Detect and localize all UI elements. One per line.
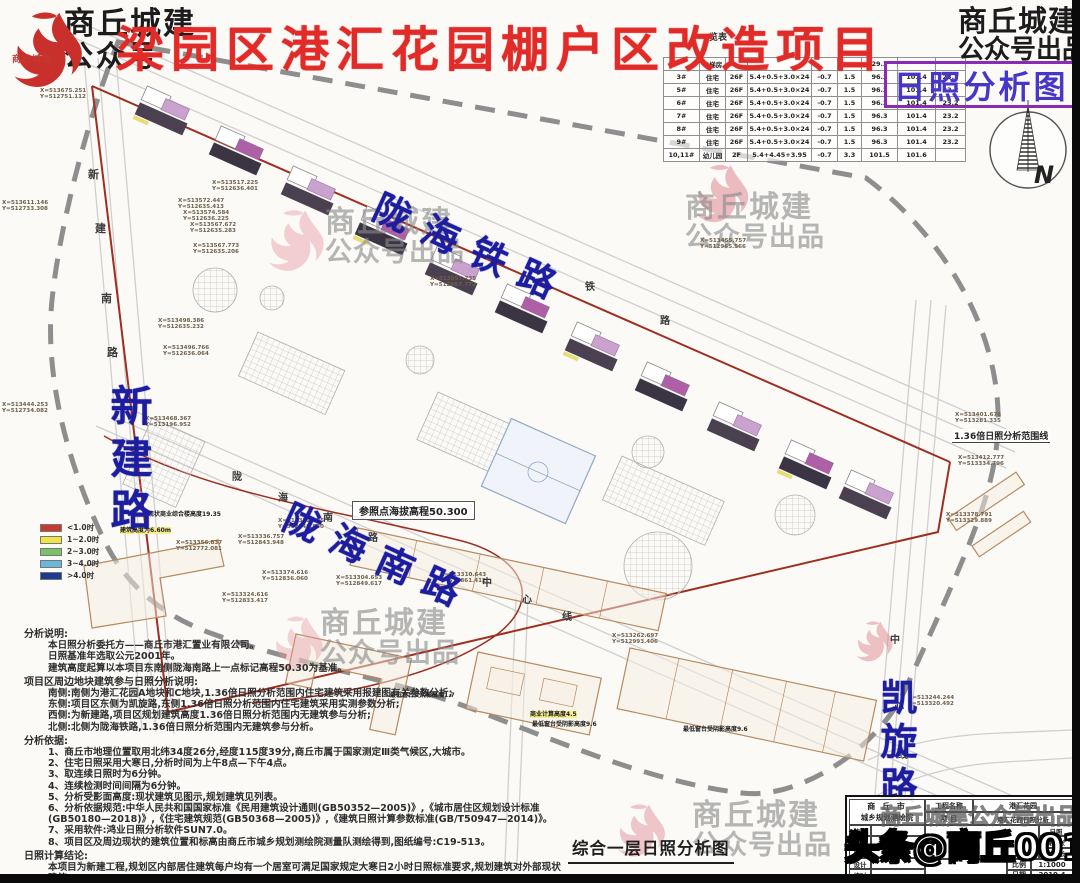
- coord-y: Y=512843.948: [238, 540, 284, 546]
- logo-seal-text: 商丘城建: [12, 52, 52, 65]
- table-cell: 幼儿园: [700, 149, 726, 162]
- legend-swatch: [40, 572, 62, 580]
- coord-y: Y=512635.232: [158, 324, 204, 330]
- legend-label: 1~2.0时: [67, 534, 99, 545]
- sunshine-legend: <1.0时1~2.0时2~3.0时3~4.0时>4.0时: [40, 522, 99, 582]
- table-cell: 101.4: [898, 136, 936, 149]
- toutiao-account-overlay: 头条@商丘001: [845, 820, 1080, 869]
- legend-item: 2~3.0时: [40, 546, 99, 557]
- table-cell: 101.6: [898, 149, 936, 162]
- watermark-line1: 商丘城建: [692, 801, 832, 832]
- table-cell: 住宅: [700, 110, 726, 123]
- table-cell: -0.7: [812, 149, 838, 162]
- road-name-char: 路: [660, 312, 670, 327]
- table-cell: 23.2: [936, 110, 966, 123]
- road-name-char: 陇: [232, 468, 242, 483]
- legend-swatch: [40, 524, 62, 532]
- coordinate-label: X=513374.616Y=512836.060: [262, 570, 308, 582]
- table-cell: 1.5: [838, 110, 862, 123]
- coordinate-label: X=513498.386Y=512635.232: [158, 318, 204, 330]
- coordinate-label: X=513412.777Y=513334.796: [958, 455, 1004, 467]
- table-cell: 5.4+0.5+3.0×24: [748, 123, 812, 136]
- coordinate-label: X=513324.616Y=512833.417: [222, 592, 268, 604]
- road-name-char: 新: [88, 166, 99, 182]
- note-heading: 分析依据:: [24, 736, 569, 747]
- table-cell: 6#: [664, 97, 700, 110]
- table-cell: 2F: [726, 149, 748, 162]
- coordinate-label: X=513356.837Y=512772.081: [176, 540, 222, 552]
- table-cell: 1.5: [838, 123, 862, 136]
- note-line: 西侧:为新建路,项目区规划建筑高度1.36倍日照分析范围内无建筑参与分析;: [48, 710, 569, 721]
- table-cell: 101.4: [898, 110, 936, 123]
- table-cell: 5.4+0.5+3.0×24: [748, 97, 812, 110]
- table-row: 8#住宅26F5.4+0.5+3.0×24-0.71.596.3101.423.…: [664, 123, 966, 136]
- table-cell: [936, 149, 966, 162]
- coord-y: Y=512734.082: [2, 408, 48, 414]
- coordinate-label: X=513444.253Y=512734.082: [2, 402, 48, 414]
- table-cell: -0.7: [812, 110, 838, 123]
- table-cell: 26F: [726, 84, 748, 97]
- table-cell: 5#: [664, 84, 700, 97]
- table-cell: 10,11#: [664, 149, 700, 162]
- legend-label: 3~4.0时: [67, 558, 99, 569]
- legend-swatch: [40, 536, 62, 544]
- note-line: 日照基准年选取公元2001年。: [48, 651, 569, 662]
- coord-y: Y=512636.401: [212, 186, 258, 192]
- note-line: 本日照分析委托方——商丘市港汇置业有限公司。: [48, 640, 569, 651]
- coordinate-label: X=513567.672Y=512635.283: [190, 222, 236, 234]
- coord-y: Y=513329.889: [946, 518, 992, 524]
- legend-label: <1.0时: [67, 522, 94, 533]
- note-line: 3、取连续日照时为6分钟。: [48, 769, 569, 780]
- road-name-char: 海: [278, 489, 288, 504]
- table-cell: -0.7: [812, 97, 838, 110]
- watermark-line1: 商丘城建: [685, 193, 825, 224]
- table-cell: 23.2: [936, 136, 966, 149]
- drawing-title: 综合一层日照分析图: [568, 835, 734, 864]
- coordinate-label: X=513378.791Y=513329.889: [946, 512, 992, 524]
- image-edge-strip-right: [1072, 0, 1080, 883]
- brand-top-right-line2: 公众号出品: [958, 37, 1080, 63]
- table-cell: 26F: [726, 97, 748, 110]
- coord-y: Y=513334.796: [958, 461, 1004, 467]
- coord-y: Y=512751.112: [40, 94, 86, 100]
- table-cell: 26F: [726, 123, 748, 136]
- table-cell: 1.5: [838, 97, 862, 110]
- coord-y: Y=512833.417: [222, 598, 268, 604]
- note-line: 8、项目区及周边现状的建筑位置和标高由商丘市城乡规划测绘院测量队测绘得到,图纸编…: [48, 837, 569, 848]
- annotation-label: 最低窗台受阴影高度9.6: [683, 726, 748, 733]
- table-cell: 1.5: [838, 84, 862, 97]
- legend-item: >4.0时: [40, 570, 99, 581]
- label-xinjian-road: 新建路: [98, 384, 159, 540]
- coordinate-label: X=513401.676Y=513281.335: [955, 412, 1001, 424]
- table-cell: 住宅: [700, 97, 726, 110]
- note-line: 4、连续检测时间间隔为6分钟。: [48, 781, 569, 792]
- legend-swatch: [40, 560, 62, 568]
- table-cell: 23.2: [936, 123, 966, 136]
- legend-item: 3~4.0时: [40, 558, 99, 569]
- table-cell: 96.3: [862, 110, 898, 123]
- sunshine-analysis-drawing: N 商丘城建 商丘城建 公众号 商丘城建 公众号出品 梁园区港汇花园棚户区改造项…: [0, 0, 1080, 883]
- north-letter: N: [1034, 161, 1054, 189]
- coordinate-label: X=513455.757Y=512965.566: [700, 238, 746, 250]
- note-heading: 项目区周边地块建筑参与日照分析说明:: [24, 677, 569, 688]
- table-cell: 8#: [664, 123, 700, 136]
- table-cell: 7#: [664, 110, 700, 123]
- coordinate-label: X=513517.225Y=512636.401: [212, 180, 258, 192]
- coord-y: Y=512967.772: [430, 282, 476, 288]
- table-cell: 96.3: [862, 136, 898, 149]
- note-line: 5、分析受影面高度:现状建筑见图示,规划建筑见列表。: [48, 792, 569, 803]
- coordinate-label: X=513496.766Y=512636.064: [163, 345, 209, 357]
- note-line: 6、分析依据规范:中华人民共和国国家标准《民用建筑设计通则(GB50352—20…: [48, 803, 569, 825]
- label-kaixuan-road: 凯旋路: [868, 678, 922, 810]
- note-heading: 日照计算结论:: [24, 851, 569, 862]
- note-line: 7、采用软件:鸿业日照分析软件SUN7.0。: [48, 825, 569, 836]
- coord-y: Y=512993.406: [612, 639, 658, 645]
- note-line: 东侧:项目区东侧为凯旋路,东侧1.36倍日照分析范围内住宅建筑采用实测参数分析;: [48, 699, 569, 710]
- table-cell: -0.7: [812, 123, 838, 136]
- road-name-char: 线: [562, 608, 572, 623]
- table-cell: 1.5: [838, 136, 862, 149]
- coord-y: Y=512733.308: [2, 206, 48, 212]
- coordinate-label: X=513611.146Y=512733.308: [2, 200, 48, 212]
- note-heading: 分析说明:: [24, 629, 569, 640]
- coord-y: Y=512635.283: [190, 228, 236, 234]
- coordinate-label: X=513572.447Y=512635.413: [178, 198, 224, 210]
- coord-y: Y=512636.064: [163, 351, 209, 357]
- coordinate-label: X=513574.584Y=512636.225: [183, 210, 229, 222]
- image-edge-strip-bottom: [0, 874, 1080, 883]
- table-row: 7#住宅26F5.4+0.5+3.0×24-0.71.596.3101.423.…: [664, 110, 966, 123]
- coord-y: Y=512772.081: [176, 546, 222, 552]
- note-line: 1、商丘市地理位置取用北纬34度26分,经度115度39分,商丘市属于国家测定Ⅲ…: [48, 747, 569, 758]
- table-cell: 5.4+4.45+3.95: [748, 149, 812, 162]
- table-cell: 5.4+0.5+3.0×24: [748, 84, 812, 97]
- legend-item: 1~2.0时: [40, 534, 99, 545]
- note-line: 南侧:南侧为港汇花园A地块和C地块,1.36倍日照分析范围内住宅建筑采用报建图有…: [48, 688, 569, 699]
- road-name-char: 中: [482, 574, 492, 589]
- brand-top-right-line1: 商丘城建: [958, 7, 1078, 36]
- table-cell: 101.4: [898, 123, 936, 136]
- road-name-char: 路: [107, 344, 118, 360]
- phoenix-logo: [6, 6, 92, 92]
- note-line: 建筑高度起算以本项目东南侧陇海南路上一点标记高程50.30为基准。: [48, 663, 569, 674]
- table-cell: 9#: [664, 136, 700, 149]
- subtitle-badge: 日照分析图: [884, 61, 1078, 108]
- road-name-char: 心: [522, 591, 532, 606]
- note-line: 北侧:北侧为陇海铁路,1.36倍日照分析范围内无建筑参与分析。: [48, 722, 569, 733]
- reference-elevation-note: 参照点海拔高程50.300: [352, 501, 475, 520]
- table-cell: -0.7: [812, 136, 838, 149]
- table-cell: -0.7: [812, 84, 838, 97]
- table-cell: 住宅: [700, 123, 726, 136]
- table-cell: 5.4+0.5+3.0×24: [748, 136, 812, 149]
- table-cell: 26F: [726, 136, 748, 149]
- table-row: 10,11#幼儿园2F5.4+4.45+3.95-0.73.3101.5101.…: [664, 149, 966, 162]
- road-name-char: 中: [890, 631, 900, 646]
- legend-label: >4.0时: [67, 570, 94, 581]
- table-cell: 3.3: [838, 149, 862, 162]
- table-cell: 住宅: [700, 84, 726, 97]
- table-cell: 26F: [726, 110, 748, 123]
- coord-y: Y=513281.335: [955, 418, 1001, 424]
- coordinate-label: X=513262.697Y=512993.406: [612, 633, 658, 645]
- legend-item: <1.0时: [40, 522, 99, 533]
- analysis-range-label: 1.36倍日照分析范围线: [952, 429, 1050, 443]
- road-name-char: 建: [95, 220, 106, 236]
- road-name-char: 铁: [585, 278, 595, 293]
- page-title: 梁园区港汇花园棚户区改造项目: [116, 10, 886, 80]
- coord-y: Y=512635.206: [193, 249, 239, 255]
- road-name-char: 南: [101, 290, 112, 306]
- coord-y: Y=512836.060: [262, 576, 308, 582]
- legend-label: 2~3.0时: [67, 546, 99, 557]
- table-cell: 5.4+0.5+3.0×24: [748, 110, 812, 123]
- table-cell: 101.5: [862, 149, 898, 162]
- analysis-notes: 分析说明:本日照分析委托方——商丘市港汇置业有限公司。日照基准年选取公元2001…: [24, 626, 569, 883]
- coord-y: Y=512965.566: [700, 244, 746, 250]
- legend-swatch: [40, 548, 62, 556]
- table-cell: 住宅: [700, 136, 726, 149]
- coordinate-label: X=513567.773Y=512635.206: [193, 243, 239, 255]
- coordinate-label: X=513057.735Y=512967.772: [430, 276, 476, 288]
- table-cell: 96.3: [862, 123, 898, 136]
- table-row: 9#住宅26F5.4+0.5+3.0×24-0.71.596.3101.423.…: [664, 136, 966, 149]
- note-line: 2、住宅日照采用大寒日,分析时间为上午8点—下午4点。: [48, 758, 569, 769]
